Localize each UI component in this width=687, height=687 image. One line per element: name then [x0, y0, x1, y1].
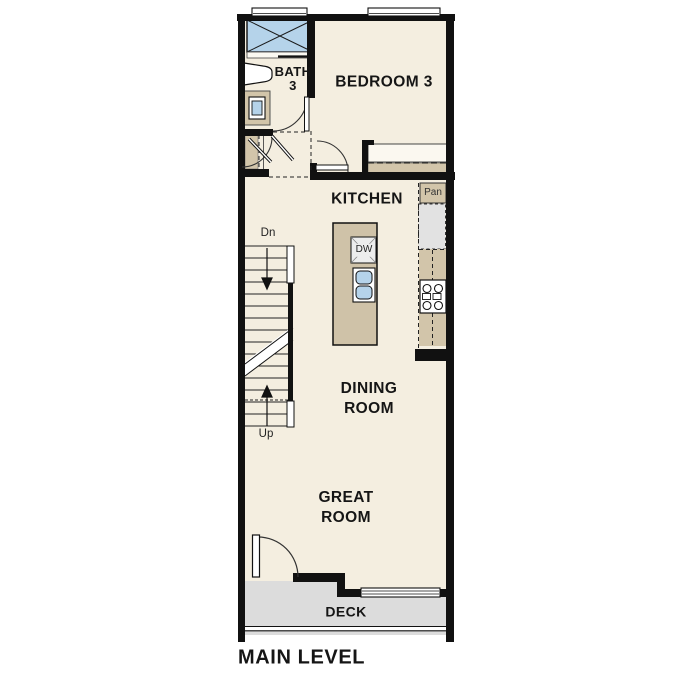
deck-edge-band: [245, 627, 446, 631]
wall-kitchen-bottom: [415, 349, 454, 361]
wall-right: [446, 14, 454, 642]
room-label-dining-room: DINING ROOM: [341, 379, 398, 419]
pantry-label: Pan: [424, 187, 442, 200]
window-bath: [252, 8, 307, 16]
window-bedroom: [368, 8, 440, 16]
bedroom-door-leaf: [316, 165, 348, 170]
wall-closet-stub: [362, 140, 374, 145]
stair-newel-bottom: [287, 401, 294, 427]
wall-closet-left: [362, 140, 368, 178]
stairs-down-label: Dn: [261, 226, 276, 240]
window-greatroom: [361, 588, 440, 597]
kitchen-sink-basin-bottom: [356, 286, 372, 299]
wall-left: [238, 14, 245, 642]
room-label-bath-3: BATH 3: [275, 65, 312, 93]
bath-door-leaf: [305, 97, 310, 131]
refrigerator: [419, 204, 446, 249]
wall-kitchen-top: [310, 172, 455, 180]
stairs-up-label: Up: [259, 427, 274, 441]
room-label-bedroom-3: BEDROOM 3: [335, 72, 432, 91]
bedroom-closet-shelf: [368, 144, 447, 162]
dishwasher-label: DW: [355, 244, 374, 257]
wall-window-left: [345, 589, 363, 597]
room-label-kitchen: KITCHEN: [331, 189, 403, 208]
wall-greatroom-step: [337, 573, 345, 597]
floor-plan-drawing: [0, 0, 687, 687]
room-label-great-room: GREAT ROOM: [318, 488, 373, 528]
floor-plan: BEDROOM 3 BATH 3 KITCHEN DINING ROOM GRE…: [0, 0, 687, 687]
room-label-deck: DECK: [325, 603, 366, 621]
wall-bath-bottom: [243, 129, 273, 136]
stair-rail: [288, 283, 293, 401]
kitchen-sink-basin-top: [356, 271, 372, 284]
level-title: MAIN LEVEL: [238, 646, 365, 671]
bath-sink-basin: [252, 101, 262, 115]
wall-hall-left: [240, 169, 269, 177]
greatroom-door-leaf: [253, 535, 260, 577]
stair-newel-top: [287, 246, 294, 283]
